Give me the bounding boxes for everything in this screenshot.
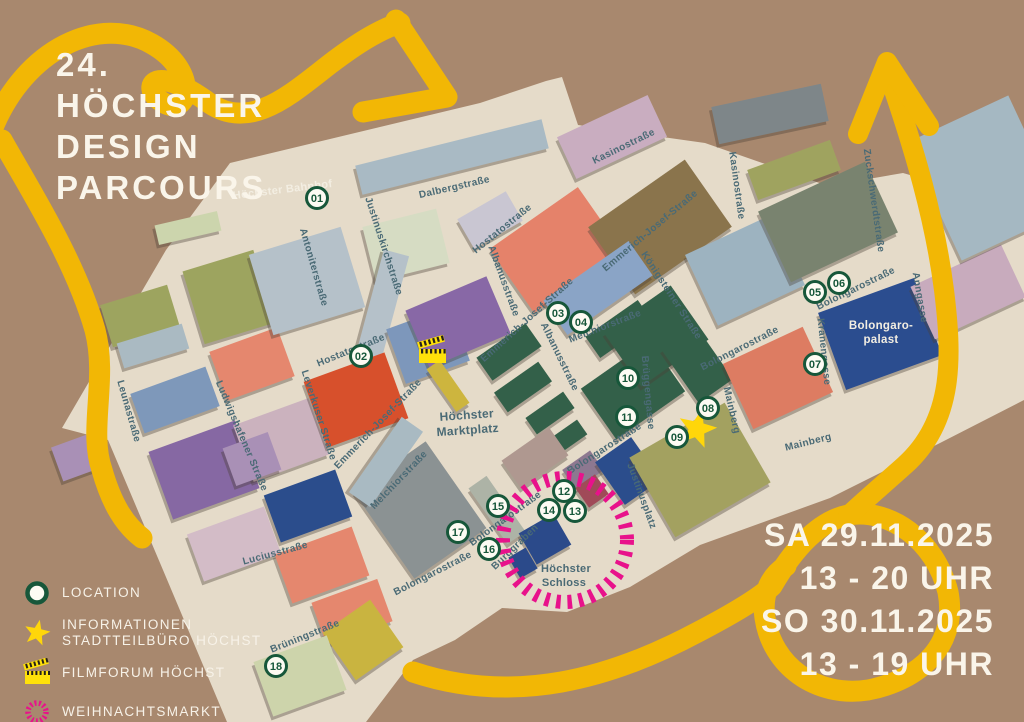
svg-text:03: 03 (552, 308, 564, 320)
marker-18[interactable]: 18 (266, 656, 287, 677)
marker-12[interactable]: 12 (554, 481, 575, 502)
date-time-1: 13 - 20 UHR (761, 557, 994, 600)
svg-text:08: 08 (702, 403, 714, 415)
dotted-circle-icon (20, 697, 54, 722)
marker-03[interactable]: 03 (548, 303, 569, 324)
marker-09[interactable]: 09 (667, 427, 688, 448)
svg-text:09: 09 (671, 432, 683, 444)
marker-11[interactable]: 11 (617, 407, 638, 428)
location-circle-icon (20, 578, 54, 608)
title-line-4: PARCOURS (56, 167, 266, 208)
design-parcours-map-poster: DalbergstraßeHostatostraßeHostatostraßeA… (0, 0, 1024, 722)
title-line-2: HÖCHSTER (56, 85, 266, 126)
place-label: Höchster (541, 563, 591, 575)
svg-text:16: 16 (483, 544, 495, 556)
marker-14[interactable]: 14 (539, 500, 560, 521)
place-label: Schloss (542, 577, 586, 589)
legend-item-location: LOCATION (20, 578, 262, 608)
marker-17[interactable]: 17 (448, 522, 469, 543)
building (711, 84, 828, 144)
marker-02[interactable]: 02 (351, 346, 372, 367)
legend-label: LOCATION (62, 585, 141, 601)
marker-06[interactable]: 06 (829, 273, 850, 294)
svg-text:10: 10 (622, 373, 634, 385)
marker-01[interactable]: 01 (307, 188, 328, 209)
svg-text:12: 12 (558, 486, 570, 498)
event-dates: SA 29.11.2025 13 - 20 UHR SO 30.11.2025 … (761, 514, 994, 686)
svg-text:15: 15 (492, 501, 504, 513)
page-title: 24. HÖCHSTER DESIGN PARCOURS (56, 44, 266, 208)
place-label: palast (863, 334, 898, 346)
svg-text:01: 01 (311, 193, 323, 205)
svg-text:11: 11 (621, 412, 633, 424)
title-line-3: DESIGN (56, 126, 266, 167)
title-line-1: 24. (56, 44, 266, 85)
svg-text:14: 14 (543, 505, 556, 517)
svg-text:05: 05 (809, 287, 821, 299)
svg-text:02: 02 (355, 351, 367, 363)
date-time-2: 13 - 19 UHR (761, 643, 994, 686)
svg-text:13: 13 (569, 506, 581, 518)
legend-label: INFORMATIONEN (62, 617, 262, 633)
svg-text:18: 18 (270, 661, 282, 673)
legend-item-filmforum: FILMFORUM HÖCHST (20, 658, 262, 688)
svg-text:17: 17 (452, 527, 464, 539)
legend-label: WEIHNACHTSMARKT (62, 704, 221, 720)
film-clapper-icon (20, 658, 54, 688)
legend-label: STADTTEILBÜRO HÖCHST (62, 633, 262, 649)
star-icon (20, 618, 54, 648)
legend: LOCATION INFORMATIONEN STADTTEILBÜRO HÖC… (20, 578, 262, 722)
marker-05[interactable]: 05 (805, 282, 826, 303)
marker-16[interactable]: 16 (479, 539, 500, 560)
svg-text:04: 04 (575, 317, 588, 329)
marker-10[interactable]: 10 (618, 368, 639, 389)
date-day-1: SA 29.11.2025 (761, 514, 994, 557)
marker-08[interactable]: 08 (698, 398, 719, 419)
svg-text:06: 06 (833, 278, 845, 290)
place-label: Bolongaro- (849, 320, 913, 332)
legend-label: FILMFORUM HÖCHST (62, 665, 225, 681)
marker-07[interactable]: 07 (805, 354, 826, 375)
date-day-2: SO 30.11.2025 (761, 600, 994, 643)
legend-item-weihnachtsmarkt: WEIHNACHTSMARKT (20, 697, 262, 722)
marker-15[interactable]: 15 (488, 496, 509, 517)
legend-item-informationen: INFORMATIONEN STADTTEILBÜRO HÖCHST (20, 617, 262, 649)
marker-13[interactable]: 13 (565, 501, 586, 522)
svg-text:07: 07 (809, 359, 821, 371)
marker-04[interactable]: 04 (571, 312, 592, 333)
